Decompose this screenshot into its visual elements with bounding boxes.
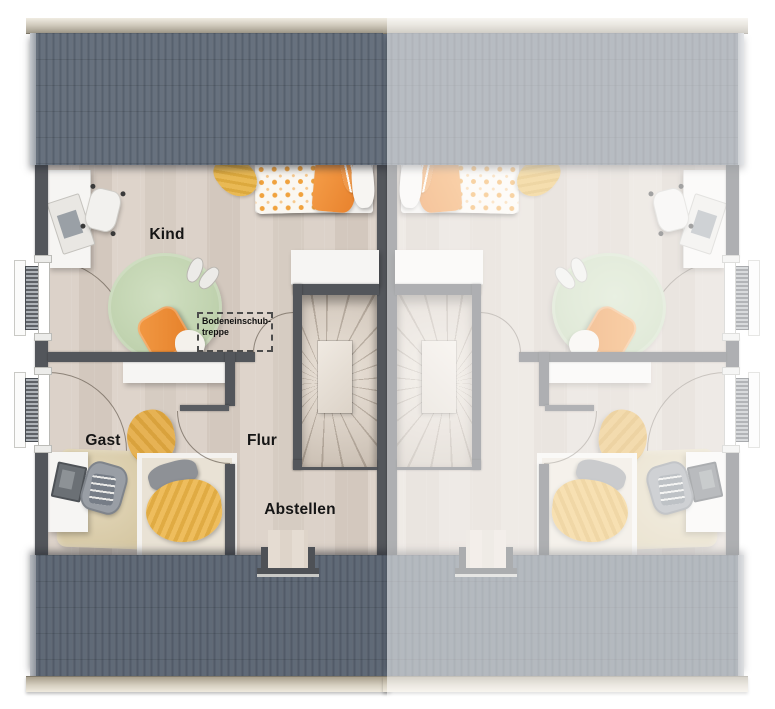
wall-kind-flur: [48, 352, 255, 362]
wall-left-mid: [726, 338, 739, 370]
sideboard-gast: [123, 361, 230, 383]
wall-left-mid: [35, 338, 48, 370]
rooms-area: Bodeneinschub- treppe Kind Gast Flur Abs…: [387, 165, 744, 555]
roof-top: [30, 33, 387, 165]
room-label-flur: Flur: [247, 432, 277, 450]
unit-left: Bodeneinschub- treppe Kind Gast Flur Abs…: [30, 18, 387, 691]
cabinet-stairs: [395, 250, 483, 285]
ridge-top: [383, 18, 748, 34]
room-label-gast: Gast: [85, 432, 120, 450]
unit-right: Bodeneinschub- treppe Kind Gast Flur Abs…: [387, 18, 744, 691]
wall-kind-flur: [519, 352, 726, 362]
wall-left-lower: [726, 450, 739, 555]
wall-left-upper: [726, 165, 739, 258]
chimney-lip: [455, 568, 517, 577]
winder-stairs: [302, 295, 377, 467]
attic-hatch-label-line2: treppe: [202, 327, 271, 338]
attic-hatch-box: Bodeneinschub- treppe: [197, 312, 273, 352]
party-wall: [387, 165, 397, 555]
bed-gast: [542, 458, 632, 555]
cabinet-stairs: [291, 250, 379, 285]
room-label-abstellen: Abstellen: [264, 501, 336, 519]
stairwell-wall-left: [293, 284, 302, 470]
chimney-lip: [257, 568, 319, 577]
ridge-bottom: [383, 676, 748, 692]
wall-left-lower: [35, 450, 48, 555]
stairwell-wall-left: [472, 284, 481, 470]
floorplan-page: Bodeneinschub- treppe Kind Gast Flur Abs…: [0, 0, 775, 709]
sideboard-gast: [544, 361, 651, 383]
chimney-floor: [268, 530, 308, 570]
throw-striped: [89, 473, 117, 506]
stair-newel: [318, 341, 352, 413]
wall-left-upper: [35, 165, 48, 258]
roof-top: [387, 33, 744, 165]
rooms-area: Bodeneinschub- treppe Kind Gast Flur Abs…: [30, 165, 387, 555]
wall-gast-flur-lower: [539, 464, 549, 555]
ridge-bottom: [26, 676, 391, 692]
room-label-kind: Kind: [149, 226, 184, 244]
chimney-floor: [466, 530, 506, 570]
roof-bottom: [387, 555, 744, 676]
stairwell-wall-top: [293, 284, 379, 295]
party-wall: [377, 165, 387, 555]
wall-gast-flur-upper: [225, 352, 235, 406]
ridge-top: [26, 18, 391, 34]
roof-bottom: [30, 555, 387, 676]
throw-striped: [658, 473, 686, 506]
stairwell-wall-top: [395, 284, 481, 295]
stair-newel: [422, 341, 456, 413]
winder-stairs: [397, 295, 472, 467]
wall-gast-flur-lower: [225, 464, 235, 555]
wall-gast-flur-upper: [539, 352, 549, 406]
bed-gast: [142, 458, 232, 555]
attic-hatch-label-line1: Bodeneinschub-: [202, 316, 271, 327]
